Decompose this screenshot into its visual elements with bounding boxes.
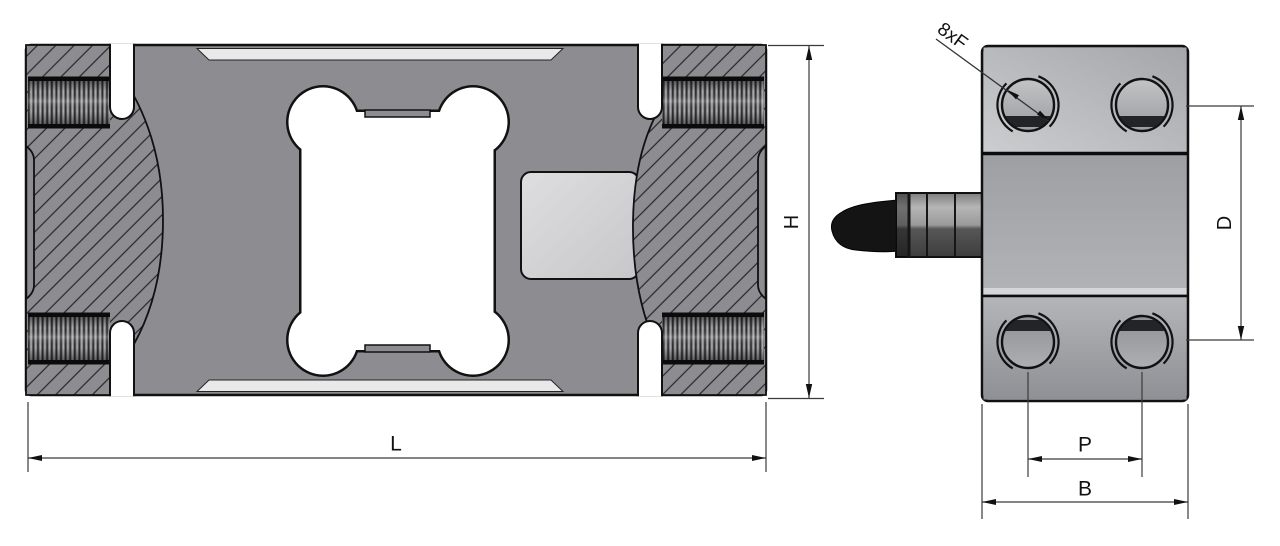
load-cell-drawing: L H — [0, 0, 1280, 546]
arrowhead — [806, 384, 812, 398]
slot-top-left — [110, 44, 134, 119]
dimension-B — [982, 404, 1188, 519]
dimension-label-B: B — [1078, 477, 1092, 500]
thread-band-bottom-left — [28, 313, 110, 365]
arrowhead — [752, 455, 766, 461]
thread-band-bottom-right — [662, 313, 764, 365]
arrowhead — [1174, 499, 1188, 505]
cable-gland — [896, 193, 984, 257]
side-view: 8xF D P B — [831, 19, 1254, 519]
dimension-label-D: D — [1214, 216, 1236, 230]
arrowhead — [806, 46, 812, 60]
arrowhead — [1238, 106, 1244, 120]
arrowhead — [1028, 456, 1042, 462]
slot-bottom-left — [110, 321, 134, 396]
bottom-edge-highlight — [197, 380, 563, 392]
arrowhead — [982, 499, 996, 505]
drawing-canvas: L H — [0, 0, 1280, 546]
callout-label-8xF: 8xF — [933, 19, 971, 55]
arrowhead — [1238, 326, 1244, 340]
sealing-pocket — [521, 172, 639, 279]
side-view-highlight-strip — [984, 288, 1187, 294]
slot-bottom-right — [638, 321, 662, 396]
dimension-label-P: P — [1078, 433, 1092, 456]
dimension-label-H: H — [781, 215, 803, 229]
flexure-cutout — [286, 85, 510, 377]
dimension-label-L: L — [390, 432, 402, 455]
cutout-top-tab — [365, 110, 430, 117]
thread-band-top-right — [662, 77, 764, 129]
slot-top-right — [638, 44, 662, 119]
cable — [831, 200, 899, 252]
top-edge-highlight — [197, 49, 563, 61]
arrowhead — [1128, 456, 1142, 462]
arrowhead — [28, 455, 42, 461]
cutout-bottom-tab — [365, 345, 430, 352]
top-view: L H — [26, 44, 824, 472]
thread-band-top-left — [28, 77, 110, 129]
